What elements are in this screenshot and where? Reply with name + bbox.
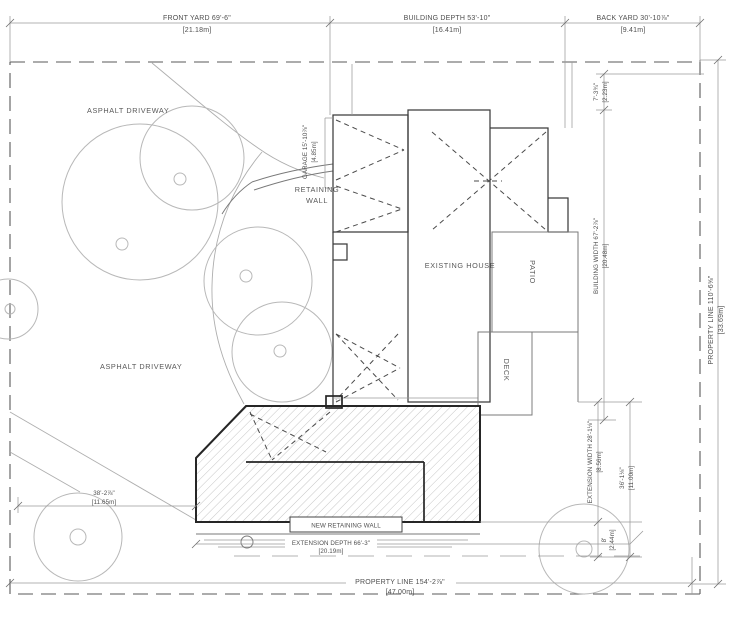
- dim-property-right-ft: PROPERTY LINE 110'-6⅝": [708, 275, 715, 364]
- dim-garage-ft: GARAGE 15'-10⅞": [302, 125, 309, 179]
- dim-front-yard-m: [21.18m]: [183, 27, 212, 34]
- dimension-right-side: 7'-3¾" [2.23m] BUILDING WIDTH 67'-2⅞" [2…: [480, 70, 704, 561]
- patio-deck-outline: [478, 232, 578, 415]
- dim-extension-width-ft: EXTENSION WIDTH 28'-1⅛": [587, 421, 594, 504]
- patio-label: PATIO: [528, 260, 537, 284]
- deck-label: DECK: [502, 359, 511, 382]
- dim-extension-depth-m: [20.19m]: [319, 548, 344, 555]
- new-extension: [196, 396, 480, 522]
- dim-top-right-offset-ft: 7'-3¾": [593, 83, 600, 101]
- asphalt-driveway-upper-label: ASPHALT DRIVEWAY: [87, 106, 169, 115]
- existing-house-label: EXISTING HOUSE: [425, 261, 495, 270]
- dim-side-offset-m: [2.44m]: [609, 529, 616, 551]
- dim-driveway-front-m: [11.65m]: [92, 499, 117, 506]
- dim-building-depth-ft: BUILDING DEPTH 53'-10": [404, 15, 491, 22]
- dim-rear-offset-m: [11.00m]: [628, 466, 635, 491]
- dim-driveway-front-ft: 38'-2⅞": [93, 490, 115, 497]
- dim-garage-m: [4.85m]: [311, 141, 318, 163]
- retaining-wall-label-line1: RETAINING: [295, 185, 340, 194]
- dimension-garage: GARAGE 15'-10⅞" [4.85m]: [302, 118, 333, 188]
- dim-side-offset-ft: 8': [601, 538, 608, 543]
- dim-property-bottom-ft: PROPERTY LINE 154'-2⅞": [355, 579, 445, 586]
- dim-property-right-m: [33.69m]: [718, 306, 725, 335]
- dim-rear-offset-ft: 36'-1⅛": [619, 467, 626, 489]
- site-plan-page: NEW RETAINING WALL FRONT YARD 69'-6" [21…: [0, 0, 748, 618]
- retaining-wall-label-line2: WALL: [306, 196, 328, 205]
- dim-building-depth-m: [16.41m]: [433, 27, 462, 34]
- asphalt-driveway-lower-label: ASPHALT DRIVEWAY: [100, 362, 182, 371]
- new-retaining-wall-label: NEW RETAINING WALL: [311, 523, 381, 530]
- dim-back-yard-m: [9.41m]: [621, 27, 646, 34]
- dim-extension-depth-ft: EXTENSION DEPTH 66'-3": [292, 540, 370, 547]
- site-plan-drawing: NEW RETAINING WALL FRONT YARD 69'-6" [21…: [0, 0, 748, 618]
- existing-house-outline: [333, 110, 568, 406]
- dim-building-width-m: [20.48m]: [602, 243, 609, 268]
- dim-top-right-offset-m: [2.23m]: [602, 81, 609, 103]
- dim-extension-width-m: [8.56m]: [596, 451, 603, 473]
- dim-back-yard-ft: BACK YARD 30'-10⅞": [597, 15, 670, 22]
- dimension-property-right: PROPERTY LINE 110'-6⅝" [33.69m]: [692, 56, 726, 588]
- dim-property-bottom-m: [47.00m]: [386, 589, 415, 596]
- dim-front-yard-ft: FRONT YARD 69'-6": [163, 15, 231, 22]
- dim-building-width-ft: BUILDING WIDTH 67'-2⅞": [593, 218, 600, 294]
